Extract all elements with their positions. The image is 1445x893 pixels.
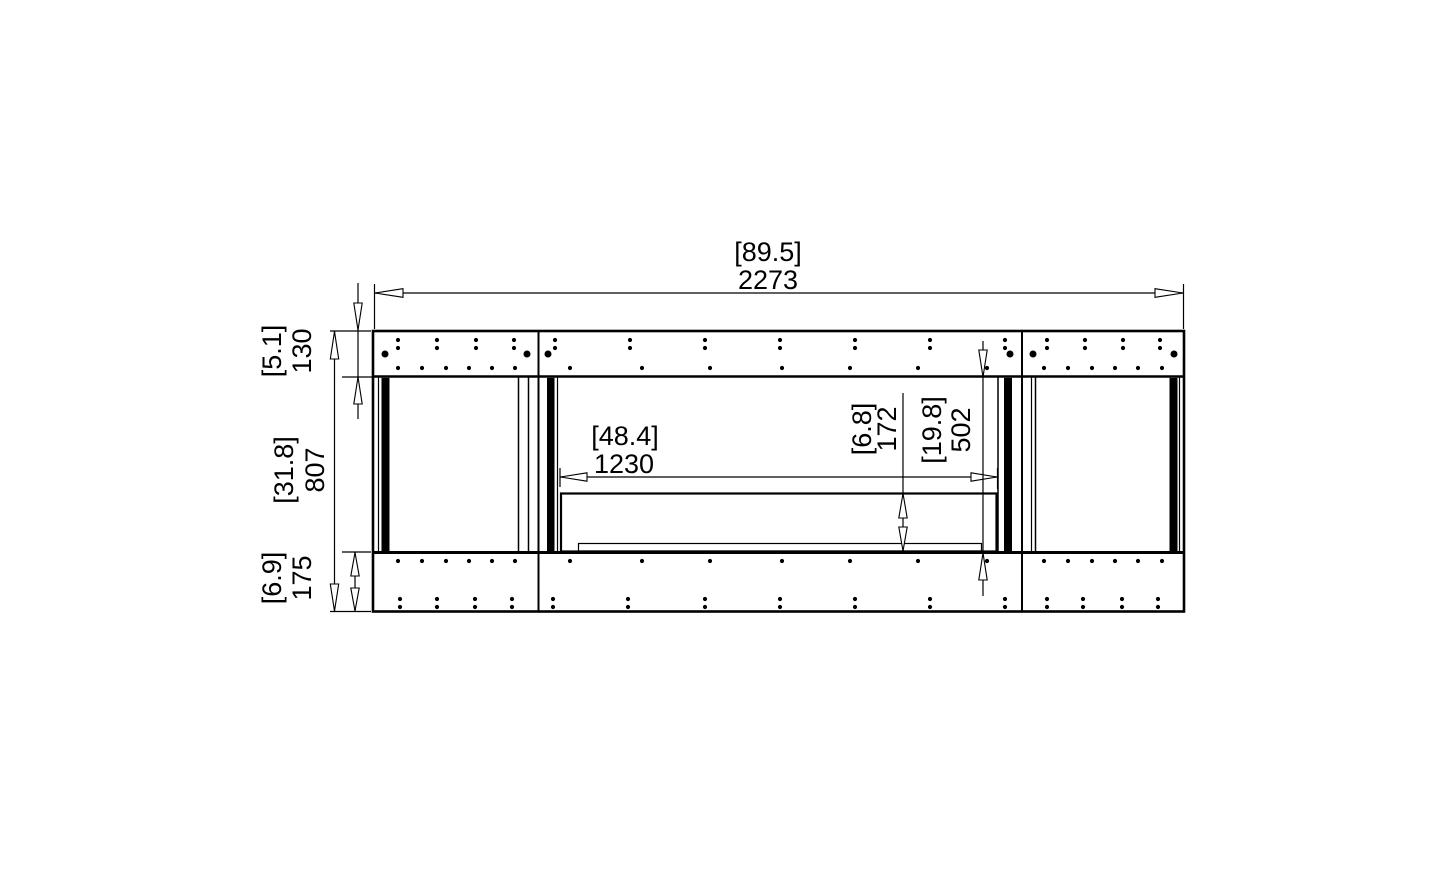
fastener-hole — [1171, 351, 1178, 358]
fastener-hole — [1121, 338, 1125, 342]
fastener-hole — [420, 559, 424, 563]
fastener-hole — [1007, 351, 1014, 358]
fastener-hole — [398, 605, 402, 609]
fastener-hole — [916, 559, 920, 563]
fastener-hole — [1120, 597, 1124, 601]
fastener-hole — [1045, 338, 1049, 342]
dim-overall-width-mm: 2273 — [738, 265, 798, 295]
fastener-hole — [467, 366, 471, 370]
fastener-hole — [1066, 559, 1070, 563]
fastener-hole — [778, 597, 782, 601]
fastener-hole — [1121, 346, 1125, 350]
fastener-hole — [444, 366, 448, 370]
fastener-hole — [382, 351, 389, 358]
fastener-hole — [510, 605, 514, 609]
dim-burner-width-mm: 1230 — [594, 449, 654, 479]
fastener-hole — [928, 605, 932, 609]
fastener-hole — [708, 559, 712, 563]
fastener-hole — [435, 605, 439, 609]
center-left-glass-edge-bar — [547, 378, 555, 551]
fastener-hole — [398, 597, 402, 601]
fastener-hole — [778, 338, 782, 342]
fastener-hole — [513, 366, 517, 370]
fastener-hole — [628, 346, 632, 350]
fastener-hole — [512, 346, 516, 350]
dim-bottom-band-inches: [6.9] — [257, 552, 287, 605]
fastener-hole — [853, 346, 857, 350]
fastener-hole — [626, 605, 630, 609]
left-glass-edge-bar — [382, 378, 390, 551]
fastener-hole — [553, 346, 557, 350]
fastener-hole — [473, 605, 477, 609]
fastener-hole — [1003, 597, 1007, 601]
technical-drawing-page: [89.5] 2273 [5.1] 130 [31.8] 807 [6.9] 1… — [0, 0, 1445, 893]
fastener-hole — [396, 559, 400, 563]
fastener-hole — [1156, 605, 1160, 609]
fastener-hole — [513, 559, 517, 563]
dim-overall-width-inches: [89.5] — [734, 237, 802, 267]
fastener-hole — [1113, 366, 1117, 370]
fastener-hole — [1045, 597, 1049, 601]
fastener-hole — [1003, 605, 1007, 609]
fastener-hole — [1090, 366, 1094, 370]
fastener-hole — [1136, 559, 1140, 563]
fastener-hole — [778, 346, 782, 350]
dim-opening-height-mm: 502 — [946, 407, 976, 452]
fastener-hole — [928, 338, 932, 342]
fastener-hole — [1158, 346, 1162, 350]
fastener-hole — [444, 559, 448, 563]
fastener-hole — [1066, 366, 1070, 370]
fastener-hole — [848, 559, 852, 563]
fastener-hole — [928, 597, 932, 601]
fastener-hole — [1083, 346, 1087, 350]
fastener-hole — [435, 346, 439, 350]
fastener-hole — [703, 338, 707, 342]
fastener-hole — [1160, 559, 1164, 563]
fastener-hole — [396, 346, 400, 350]
fastener-hole — [490, 559, 494, 563]
fastener-hole — [510, 597, 514, 601]
fastener-hole — [473, 597, 477, 601]
fastener-hole — [780, 366, 784, 370]
fastener-hole — [853, 605, 857, 609]
fastener-hole — [1042, 366, 1046, 370]
dim-bottom-band-mm: 175 — [287, 555, 317, 600]
fastener-hole — [435, 338, 439, 342]
dim-overall-height-mm: 807 — [300, 447, 330, 492]
fastener-hole — [1081, 597, 1085, 601]
fastener-hole — [640, 366, 644, 370]
fastener-hole — [551, 605, 555, 609]
fastener-hole — [551, 597, 555, 601]
dim-overall-height-inches: [31.8] — [269, 436, 299, 504]
fastener-hole — [703, 346, 707, 350]
fastener-hole — [703, 605, 707, 609]
fastener-hole — [1045, 346, 1049, 350]
fastener-hole — [848, 366, 852, 370]
fireplace-front-elevation-drawing: [89.5] 2273 [5.1] 130 [31.8] 807 [6.9] 1… — [0, 0, 1445, 893]
fastener-hole — [568, 366, 572, 370]
fastener-hole — [467, 559, 471, 563]
fastener-hole — [420, 366, 424, 370]
fastener-hole — [545, 351, 552, 358]
fastener-hole — [396, 338, 400, 342]
fastener-hole — [1003, 346, 1007, 350]
fastener-hole — [780, 559, 784, 563]
fastener-hole — [626, 597, 630, 601]
fastener-hole — [1045, 605, 1049, 609]
fastener-hole — [435, 597, 439, 601]
fastener-hole — [1083, 338, 1087, 342]
fastener-hole — [928, 346, 932, 350]
fastener-hole — [1113, 559, 1117, 563]
fastener-hole — [1156, 597, 1160, 601]
fastener-hole — [512, 338, 516, 342]
fastener-hole — [628, 338, 632, 342]
dim-opening-height-inches: [19.8] — [917, 396, 947, 464]
fastener-hole — [1158, 338, 1162, 342]
fastener-hole — [490, 366, 494, 370]
fastener-hole — [1081, 605, 1085, 609]
fastener-hole — [1003, 338, 1007, 342]
fastener-hole — [524, 351, 531, 358]
fastener-hole — [853, 597, 857, 601]
fastener-hole — [1160, 366, 1164, 370]
dim-burner-height-mm: 172 — [872, 406, 902, 451]
dim-top-band-mm: 130 — [287, 328, 317, 373]
fastener-hole — [778, 605, 782, 609]
dim-top-band-inches: [5.1] — [257, 325, 287, 378]
fastener-hole — [916, 366, 920, 370]
fastener-hole — [640, 559, 644, 563]
fastener-hole — [1042, 559, 1046, 563]
fastener-hole — [985, 366, 989, 370]
fastener-hole — [474, 346, 478, 350]
right-glass-edge-bar — [1170, 378, 1178, 551]
center-right-glass-edge-bar — [1004, 378, 1012, 551]
fastener-hole — [396, 366, 400, 370]
fastener-hole — [568, 559, 572, 563]
fastener-hole — [1120, 605, 1124, 609]
drawing-background — [0, 0, 1445, 893]
fastener-hole — [1090, 559, 1094, 563]
fastener-hole — [853, 338, 857, 342]
fastener-hole — [985, 559, 989, 563]
fastener-hole — [553, 338, 557, 342]
dim-burner-width-inches: [48.4] — [591, 421, 659, 451]
fastener-hole — [708, 366, 712, 370]
fastener-hole — [1136, 366, 1140, 370]
fastener-hole — [1030, 351, 1037, 358]
fastener-hole — [703, 597, 707, 601]
fastener-hole — [474, 338, 478, 342]
